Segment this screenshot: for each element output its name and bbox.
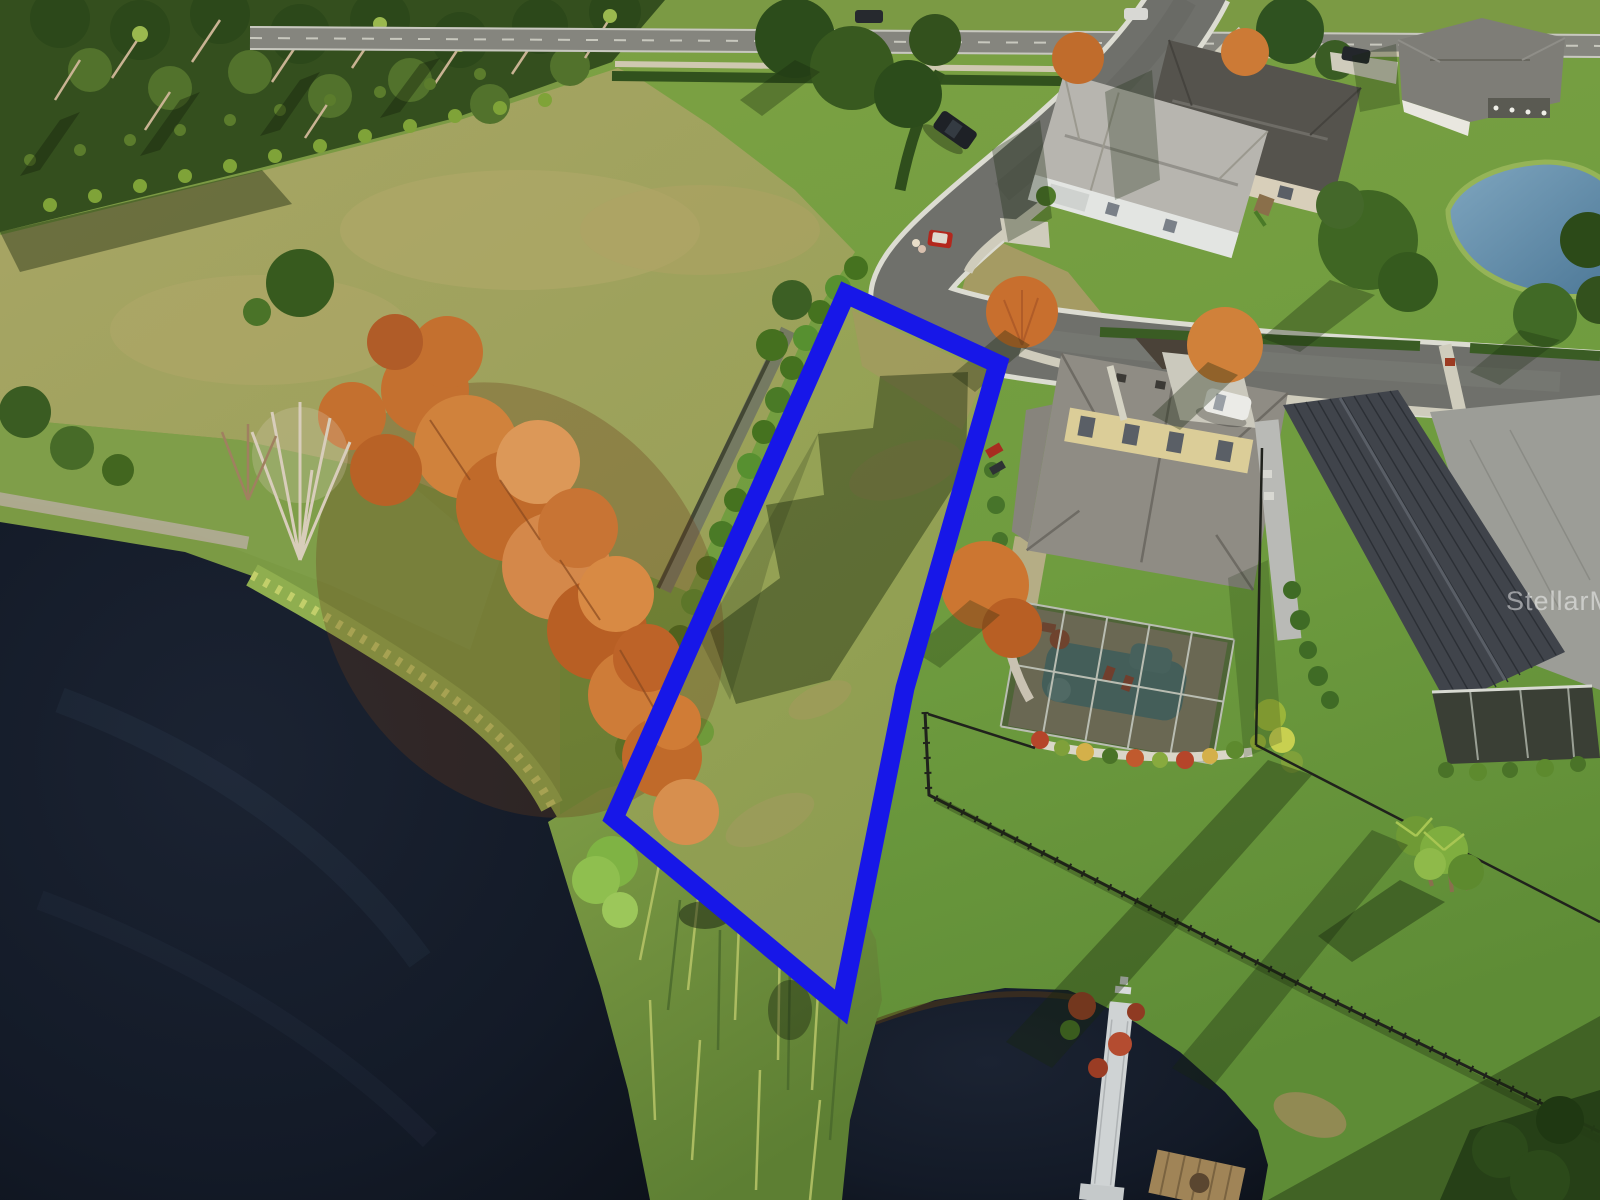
utility-marker <box>1445 358 1455 366</box>
white-car-main-road <box>1124 8 1148 20</box>
car-on-main-road <box>855 10 883 23</box>
aerial-photo: StellarMLS <box>0 0 1600 1200</box>
red-cart <box>927 229 953 248</box>
person <box>918 245 926 253</box>
watermark: StellarMLS <box>1506 586 1600 616</box>
person <box>912 239 920 247</box>
screened-lanai <box>1432 686 1600 764</box>
